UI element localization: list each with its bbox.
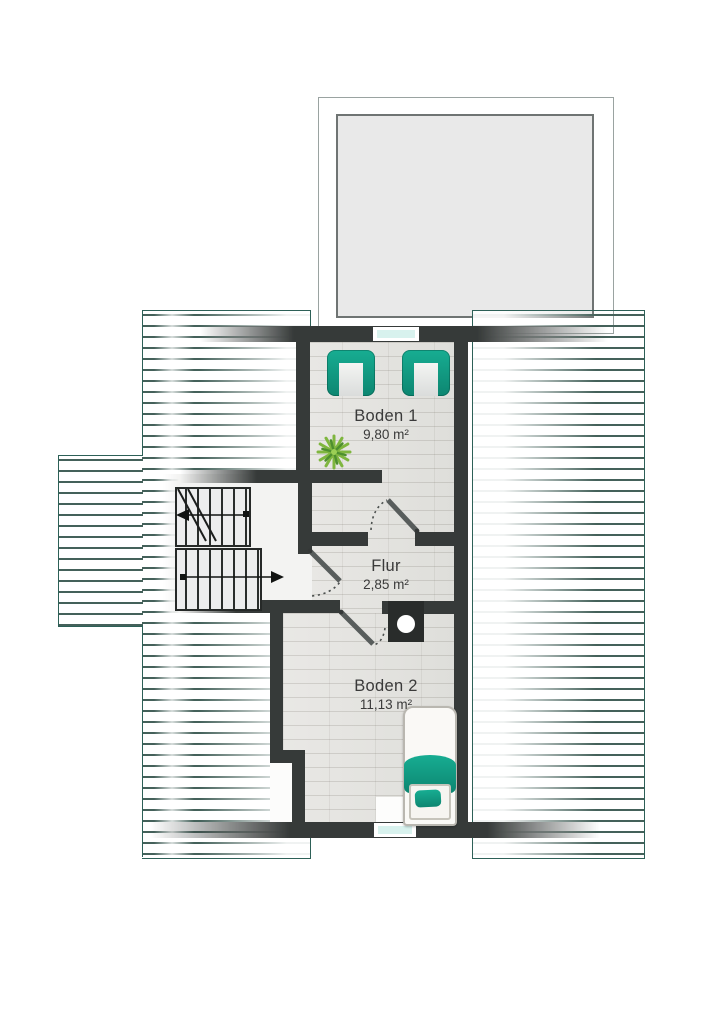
floor-plan-canvas: Boden 1 9,80 m² Flur 2,85 m² Boden 2 11,… xyxy=(0,0,724,1024)
window-pane xyxy=(378,826,412,834)
wall-recess xyxy=(270,763,294,822)
roof-hatch-right xyxy=(472,310,645,859)
window-niche xyxy=(376,797,404,822)
chimney xyxy=(388,601,424,642)
bed-pillow xyxy=(415,789,442,807)
roof-edge-left-bottom xyxy=(142,625,143,857)
room-area: 9,80 m² xyxy=(306,427,466,444)
room-name: Boden 1 xyxy=(306,406,466,427)
stair-flight-lower xyxy=(175,548,262,611)
single-bed xyxy=(403,706,457,826)
roof-hatch-left-bump xyxy=(58,455,143,627)
wall-stair-east xyxy=(298,470,312,554)
roof-edge-left-top xyxy=(142,310,143,455)
room-name: Flur xyxy=(326,556,446,577)
wall-boden1-south xyxy=(180,470,382,483)
wall-flur-northeast-stub xyxy=(415,532,454,546)
window-north xyxy=(373,327,419,341)
room-label-boden1: Boden 1 9,80 m² xyxy=(306,406,466,444)
armchair-2 xyxy=(402,350,450,396)
stair-flight-upper xyxy=(175,487,251,547)
window-pane xyxy=(377,330,415,338)
room-name: Boden 2 xyxy=(306,676,466,697)
room-label-boden2: Boden 2 11,13 m² xyxy=(306,676,466,714)
dormer-roof-window xyxy=(336,114,594,318)
armchair-1 xyxy=(327,350,375,396)
wall-boden2-west-upper xyxy=(270,613,283,763)
room-area: 2,85 m² xyxy=(326,577,446,594)
room-area: 11,13 m² xyxy=(306,697,466,714)
room-label-flur: Flur 2,85 m² xyxy=(326,556,446,594)
wall-boden2-west-lower xyxy=(292,750,305,822)
wall-flur-northwest-stub xyxy=(312,532,368,546)
